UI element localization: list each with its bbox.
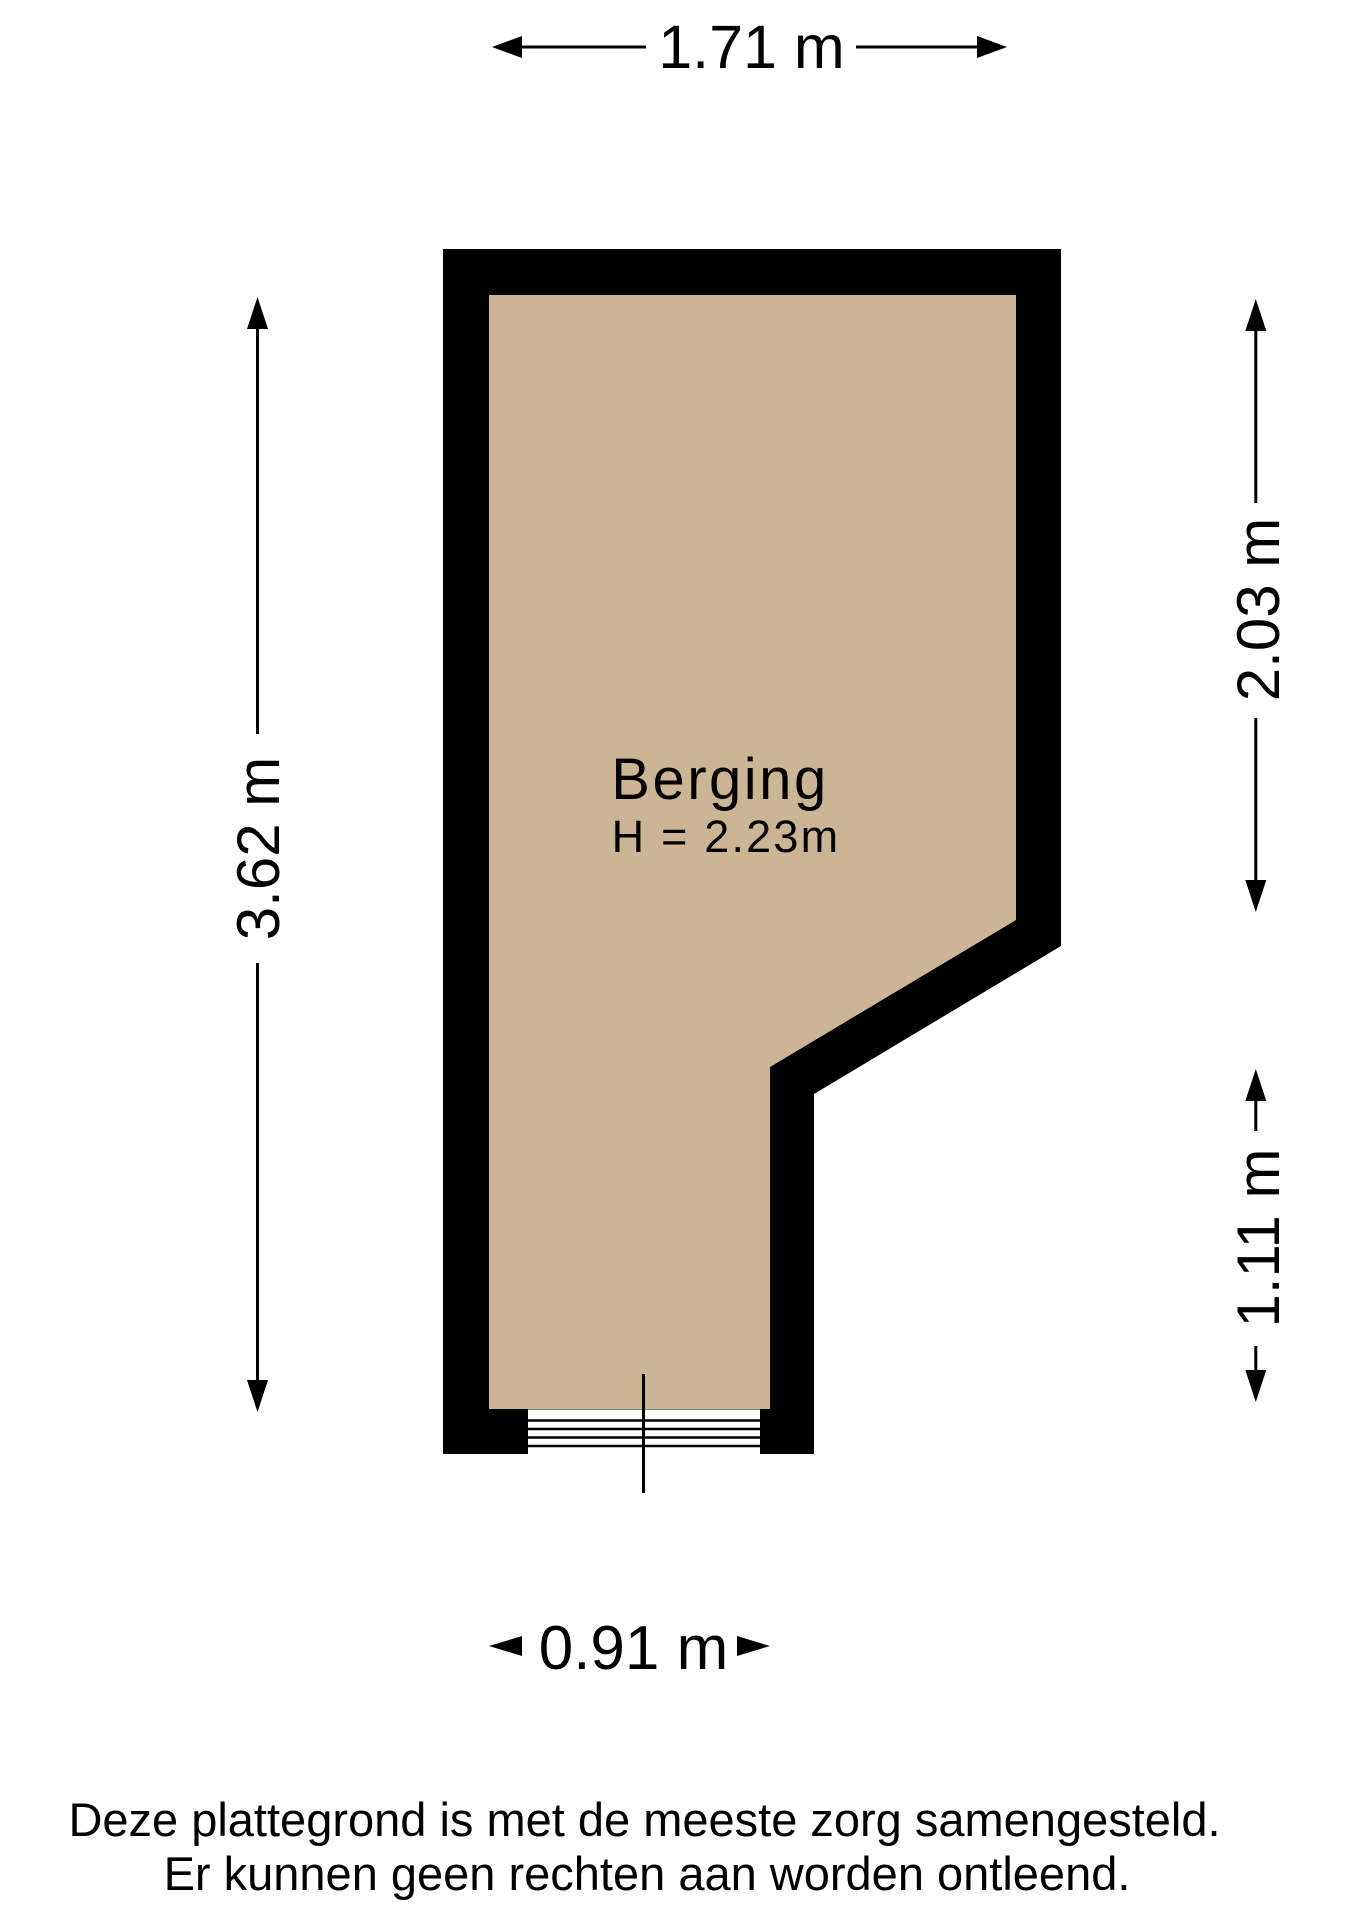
svg-text:Er kunnen geen rechten aan wor: Er kunnen geen rechten aan worden ontlee… xyxy=(164,1847,1131,1900)
svg-text:1.11 m: 1.11 m xyxy=(1225,1149,1292,1328)
svg-text:3.62 m: 3.62 m xyxy=(225,757,292,940)
svg-text:Deze plattegrond is met de mee: Deze plattegrond is met de meeste zorg s… xyxy=(68,1793,1220,1846)
svg-text:2.03 m: 2.03 m xyxy=(1225,518,1292,701)
svg-text:1.71 m: 1.71 m xyxy=(658,13,845,81)
svg-text:H = 2.23m: H = 2.23m xyxy=(612,811,841,862)
svg-text:Berging: Berging xyxy=(611,747,828,812)
svg-text:0.91 m: 0.91 m xyxy=(539,1614,729,1683)
